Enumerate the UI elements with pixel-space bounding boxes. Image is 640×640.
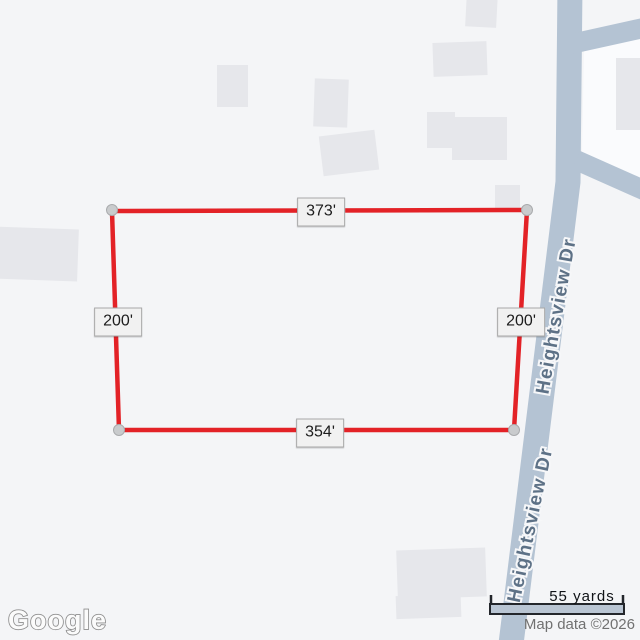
map-data-attribution: Map data ©2026 bbox=[524, 616, 635, 633]
parcel-corner-marker[interactable] bbox=[107, 205, 118, 216]
map-canvas[interactable]: Heightsview Dr Heightsview Dr 55 yards G… bbox=[0, 0, 640, 640]
building bbox=[616, 58, 640, 130]
building bbox=[396, 547, 487, 599]
building bbox=[452, 117, 507, 160]
dimension-label-left: 200' bbox=[94, 308, 142, 337]
scale-bar-rule bbox=[490, 604, 624, 614]
building bbox=[217, 65, 248, 107]
parcel-corner-marker[interactable] bbox=[509, 425, 520, 436]
building bbox=[396, 594, 462, 619]
dimension-label-right: 200' bbox=[497, 308, 545, 337]
building bbox=[313, 78, 349, 127]
google-logo[interactable]: Google bbox=[8, 605, 107, 635]
scale-bar-label: 55 yards bbox=[549, 588, 615, 605]
parcel-corner-marker[interactable] bbox=[522, 205, 533, 216]
parcel-boundary bbox=[112, 210, 527, 430]
building bbox=[465, 0, 498, 28]
dimension-label-bottom: 354' bbox=[296, 419, 344, 448]
building bbox=[0, 227, 79, 282]
parcel-corner-marker[interactable] bbox=[114, 425, 125, 436]
building bbox=[495, 185, 520, 210]
building bbox=[432, 41, 487, 77]
parcel-overlay bbox=[107, 205, 533, 436]
dimension-label-top: 373' bbox=[297, 198, 345, 227]
building bbox=[319, 130, 379, 177]
building bbox=[427, 112, 455, 148]
